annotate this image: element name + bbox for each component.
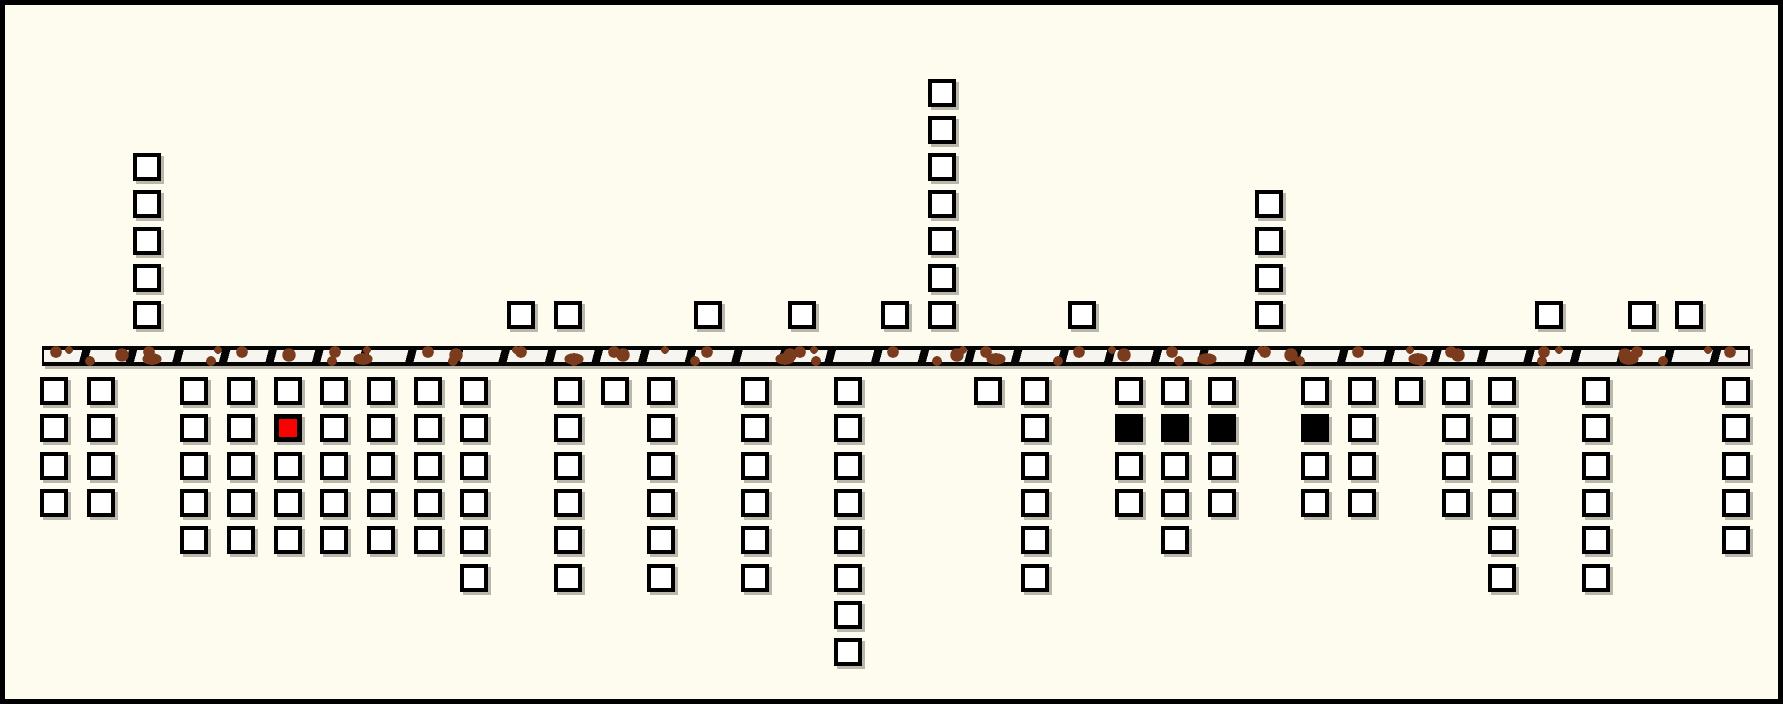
count-square (320, 489, 348, 517)
count-square (1255, 227, 1283, 255)
count-square (180, 414, 208, 442)
count-square (1582, 526, 1610, 554)
count-square (1722, 377, 1750, 405)
count-square (1722, 452, 1750, 480)
filled-square-black (1115, 414, 1143, 442)
count-square (1255, 264, 1283, 292)
count-square (1115, 452, 1143, 480)
count-square (1722, 526, 1750, 554)
count-square (227, 489, 255, 517)
count-square (1348, 452, 1376, 480)
count-square (647, 526, 675, 554)
count-square (1301, 377, 1329, 405)
count-square (974, 377, 1002, 405)
count-square (1021, 377, 1049, 405)
count-square (1161, 452, 1189, 480)
count-square (133, 301, 161, 329)
count-square (1348, 489, 1376, 517)
count-square (1161, 489, 1189, 517)
count-square (87, 489, 115, 517)
count-square (40, 489, 68, 517)
count-square (367, 452, 395, 480)
count-square (274, 526, 302, 554)
count-square (601, 377, 629, 405)
count-square (928, 190, 956, 218)
count-square (320, 377, 348, 405)
count-square (1021, 526, 1049, 554)
count-square (1488, 377, 1516, 405)
count-square (320, 414, 348, 442)
count-square (1675, 301, 1703, 329)
count-square (647, 414, 675, 442)
count-square (1208, 489, 1236, 517)
count-square (367, 489, 395, 517)
count-square (1442, 377, 1470, 405)
count-square (1488, 489, 1516, 517)
filled-square-black (1301, 414, 1329, 442)
count-square (928, 153, 956, 181)
count-square (741, 564, 769, 592)
count-square (180, 489, 208, 517)
count-square (274, 489, 302, 517)
count-square (741, 414, 769, 442)
count-square (180, 377, 208, 405)
count-square (1582, 564, 1610, 592)
count-square (834, 489, 862, 517)
count-square (1021, 564, 1049, 592)
count-square (414, 452, 442, 480)
count-square (554, 452, 582, 480)
count-square (741, 377, 769, 405)
count-square (414, 414, 442, 442)
sequence-band (42, 346, 1750, 366)
count-square (414, 489, 442, 517)
count-square (1582, 489, 1610, 517)
count-square (788, 301, 816, 329)
count-square (227, 377, 255, 405)
count-square (507, 301, 535, 329)
count-square (1582, 377, 1610, 405)
count-square (133, 190, 161, 218)
count-square (928, 227, 956, 255)
count-square (741, 452, 769, 480)
count-square (1115, 489, 1143, 517)
count-square (1488, 564, 1516, 592)
count-square (40, 452, 68, 480)
filled-square-black (1161, 414, 1189, 442)
count-square (1488, 526, 1516, 554)
count-square (1442, 452, 1470, 480)
count-square (741, 489, 769, 517)
count-square (1628, 301, 1656, 329)
count-square (647, 489, 675, 517)
count-square (1722, 489, 1750, 517)
count-square (834, 638, 862, 666)
count-square (928, 301, 956, 329)
count-square (1301, 452, 1329, 480)
count-square (367, 414, 395, 442)
count-square (133, 153, 161, 181)
figure-frame (0, 0, 1783, 704)
count-square (928, 79, 956, 107)
count-square (1582, 414, 1610, 442)
count-square (1021, 414, 1049, 442)
count-square (133, 264, 161, 292)
count-square (227, 414, 255, 442)
count-square (227, 452, 255, 480)
count-square (1301, 489, 1329, 517)
count-square (1255, 301, 1283, 329)
count-square (274, 377, 302, 405)
count-square (274, 452, 302, 480)
count-square (320, 526, 348, 554)
band-brown-spots (42, 346, 1750, 366)
count-square (460, 489, 488, 517)
count-square (367, 377, 395, 405)
count-square (40, 377, 68, 405)
count-square (554, 489, 582, 517)
count-square (554, 526, 582, 554)
count-square (834, 377, 862, 405)
count-square (133, 227, 161, 255)
count-square (554, 377, 582, 405)
count-square (834, 601, 862, 629)
count-square (1068, 301, 1096, 329)
count-square (1161, 377, 1189, 405)
count-square (1021, 452, 1049, 480)
highlight-square-red (274, 414, 302, 442)
count-square (1488, 414, 1516, 442)
count-square (1442, 489, 1470, 517)
count-square (1395, 377, 1423, 405)
count-square (881, 301, 909, 329)
count-square (87, 414, 115, 442)
count-square (928, 116, 956, 144)
count-square (1208, 452, 1236, 480)
count-square (647, 564, 675, 592)
count-square (87, 452, 115, 480)
count-square (647, 452, 675, 480)
count-square (87, 377, 115, 405)
count-square (1115, 377, 1143, 405)
count-square (40, 414, 68, 442)
count-square (554, 564, 582, 592)
count-square (320, 452, 348, 480)
count-square (1348, 377, 1376, 405)
count-square (1582, 452, 1610, 480)
count-square (554, 414, 582, 442)
count-square (741, 526, 769, 554)
count-square (1161, 526, 1189, 554)
count-square (1442, 414, 1470, 442)
filled-square-black (1208, 414, 1236, 442)
count-square (1535, 301, 1563, 329)
count-square (1488, 452, 1516, 480)
count-square (1255, 190, 1283, 218)
count-square (460, 564, 488, 592)
count-square (834, 526, 862, 554)
count-square (180, 526, 208, 554)
count-square (694, 301, 722, 329)
count-square (834, 564, 862, 592)
count-square (460, 414, 488, 442)
count-square (928, 264, 956, 292)
count-square (414, 526, 442, 554)
count-square (647, 377, 675, 405)
count-square (460, 377, 488, 405)
count-square (414, 377, 442, 405)
count-square (367, 526, 395, 554)
count-square (1021, 489, 1049, 517)
count-square (1722, 414, 1750, 442)
count-square (227, 526, 255, 554)
count-square (1208, 377, 1236, 405)
count-square (460, 526, 488, 554)
count-square (180, 452, 208, 480)
count-square (834, 414, 862, 442)
count-square (554, 301, 582, 329)
count-square (1348, 414, 1376, 442)
count-square (460, 452, 488, 480)
count-square (834, 452, 862, 480)
